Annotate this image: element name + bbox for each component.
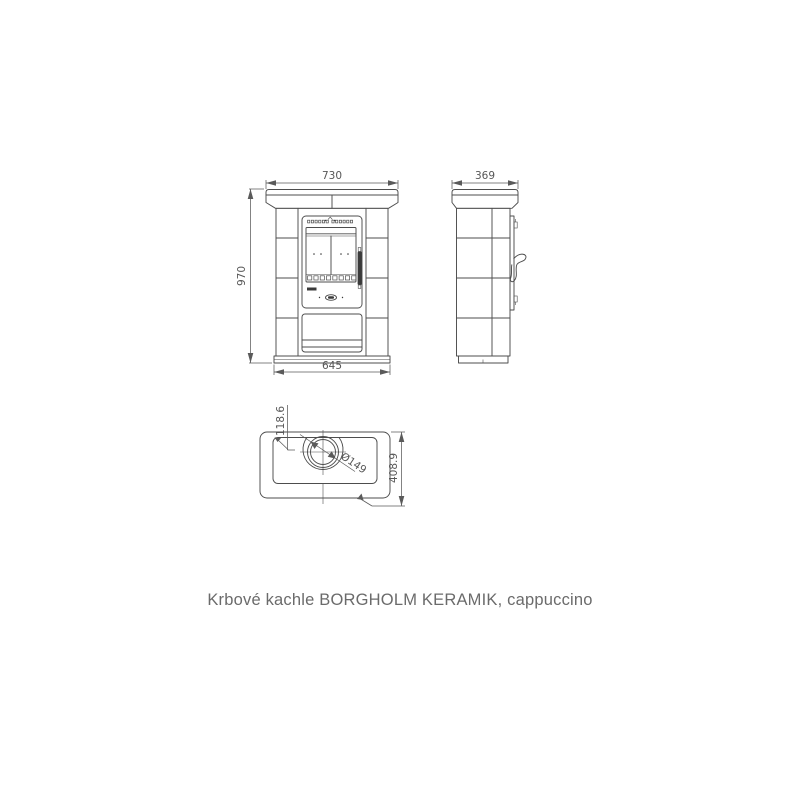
front-top-plate xyxy=(266,190,398,209)
door-bottom-vents xyxy=(308,276,356,280)
air-control-knob xyxy=(319,295,343,301)
technical-drawing: 730 970 xyxy=(0,0,800,560)
ash-drawer xyxy=(302,314,362,352)
fire-door xyxy=(302,216,362,308)
tile-joints-right xyxy=(366,238,388,318)
dim-label-645: 645 xyxy=(322,360,342,372)
door-top-vents xyxy=(308,217,353,223)
side-body xyxy=(457,208,511,356)
side-base xyxy=(459,356,509,363)
dim-label-970: 970 xyxy=(236,266,248,286)
side-door-handle xyxy=(510,254,526,282)
dimension-width-730: 730 xyxy=(266,170,398,189)
side-view: 369 xyxy=(452,170,526,363)
dimension-height-970: 970 xyxy=(236,189,272,363)
door-glass xyxy=(306,228,356,283)
top-plate-outline xyxy=(260,432,390,498)
dim-label-149: Ø149 xyxy=(338,451,368,477)
front-view: 730 970 xyxy=(236,170,398,375)
tile-joints-left xyxy=(276,238,298,318)
side-top-plate xyxy=(452,190,518,209)
dim-label-369: 369 xyxy=(475,170,495,182)
side-door-edge xyxy=(510,216,526,310)
product-drawing-page: 730 970 xyxy=(0,0,800,800)
product-caption: Krbové kachle BORGHOLM KERAMIK, cappucci… xyxy=(0,591,800,610)
dimension-depth-369: 369 xyxy=(452,170,518,189)
dim-label-408-9: 408.9 xyxy=(388,453,400,483)
door-handle xyxy=(358,248,362,289)
dim-label-118-6: 118.6 xyxy=(275,406,287,436)
brand-plate xyxy=(307,288,317,291)
dim-label-730: 730 xyxy=(322,170,342,182)
dimension-flue-offset: 118.6 xyxy=(275,405,296,450)
top-view: 118.6 Ø149 408.9 xyxy=(260,405,405,506)
dimension-base-645: 645 xyxy=(274,360,390,375)
flue-outlet xyxy=(300,430,346,475)
